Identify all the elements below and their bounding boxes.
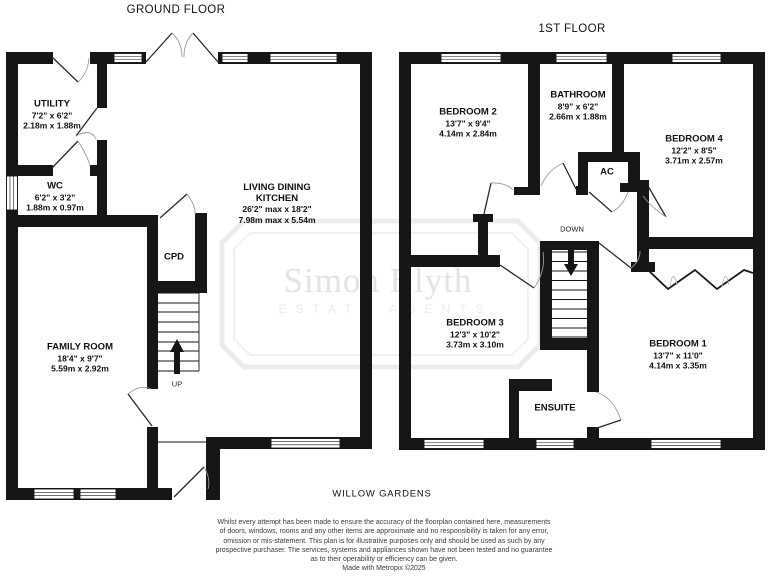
- labels-layer: GROUND FLOOR 1ST FLOOR UTILITY 7'2" x 6'…: [0, 0, 768, 576]
- disclaimer-line: omission or mis-statement. This plan is …: [216, 537, 553, 546]
- room-label-bedroom-3: BEDROOM 3 12'3" x 10'2" 3.73m x 3.10m: [446, 318, 504, 350]
- disclaimer-credit: Made with Metropix ©2025: [216, 564, 553, 573]
- stairs-down-label: DOWN: [560, 225, 584, 234]
- airing-cupboard-label: AC: [600, 167, 614, 178]
- disclaimer: Whilst every attempt has been made to en…: [216, 518, 553, 574]
- disclaimer-line: as to their operability or efficiency ca…: [216, 555, 553, 564]
- ensuite-label: ENSUITE: [534, 403, 575, 414]
- floorplan-canvas: Simon Blyth ESTATE AGENTS: [0, 0, 768, 576]
- first-floor-title: 1ST FLOOR: [538, 23, 605, 35]
- room-label-bedroom-2: BEDROOM 2 13'7" x 9'4" 4.14m x 2.84m: [439, 107, 497, 139]
- cupboard-label: CPD: [164, 252, 184, 263]
- disclaimer-line: prospective purchaser. The services, sys…: [216, 546, 553, 555]
- ground-floor-title: GROUND FLOOR: [127, 4, 226, 16]
- address-label: WILLOW GARDENS: [332, 489, 431, 500]
- room-label-bathroom: BATHROOM 8'9" x 6'2" 2.66m x 1.88m: [549, 90, 607, 122]
- disclaimer-line: of doors, windows, rooms and any other i…: [216, 527, 553, 536]
- disclaimer-line: Whilst every attempt has been made to en…: [216, 518, 553, 527]
- room-label-wc: WC 6'2" x 3'2" 1.88m x 0.97m: [26, 181, 84, 213]
- room-label-family-room: FAMILY ROOM 18'4" x 9'7" 5.59m x 2.92m: [47, 342, 113, 374]
- room-label-utility: UTILITY 7'2" x 6'2" 2.18m x 1.88m: [23, 99, 81, 131]
- room-label-bedroom-1: BEDROOM 1 13'7" x 11'0" 4.14m x 3.35m: [649, 339, 707, 371]
- room-label-bedroom-4: BEDROOM 4 12'2" x 8'5" 3.71m x 2.57m: [665, 134, 723, 166]
- stairs-up-label: UP: [172, 380, 182, 389]
- room-label-living-dining-kitchen: LIVING DINING KITCHEN 26'2" max x 18'2" …: [238, 183, 315, 225]
